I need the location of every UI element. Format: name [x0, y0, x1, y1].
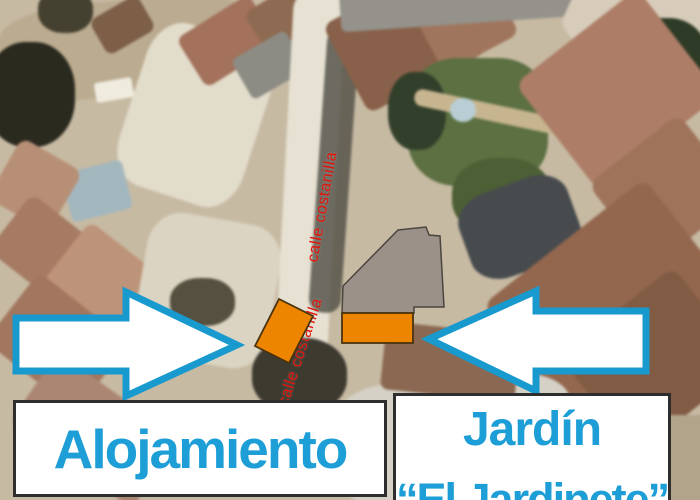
garden-callout: Jardín “El Jardinete” — [393, 393, 671, 500]
arrow-pointing-left-icon — [429, 291, 646, 391]
annotated-aerial-map: calle costanilla calle costanilla Alojam… — [0, 0, 700, 500]
garden-building-highlight — [342, 313, 413, 343]
arrow-pointing-right-icon — [16, 292, 237, 396]
garden-callout-subtitle: “El Jardinete” — [396, 474, 668, 500]
lodging-callout-label: Alojamiento — [54, 417, 347, 481]
lodging-building-highlight — [255, 299, 313, 363]
garden-area-highlight — [342, 227, 444, 313]
garden-callout-title: Jardín — [396, 402, 668, 457]
lodging-callout: Alojamiento — [13, 400, 387, 497]
